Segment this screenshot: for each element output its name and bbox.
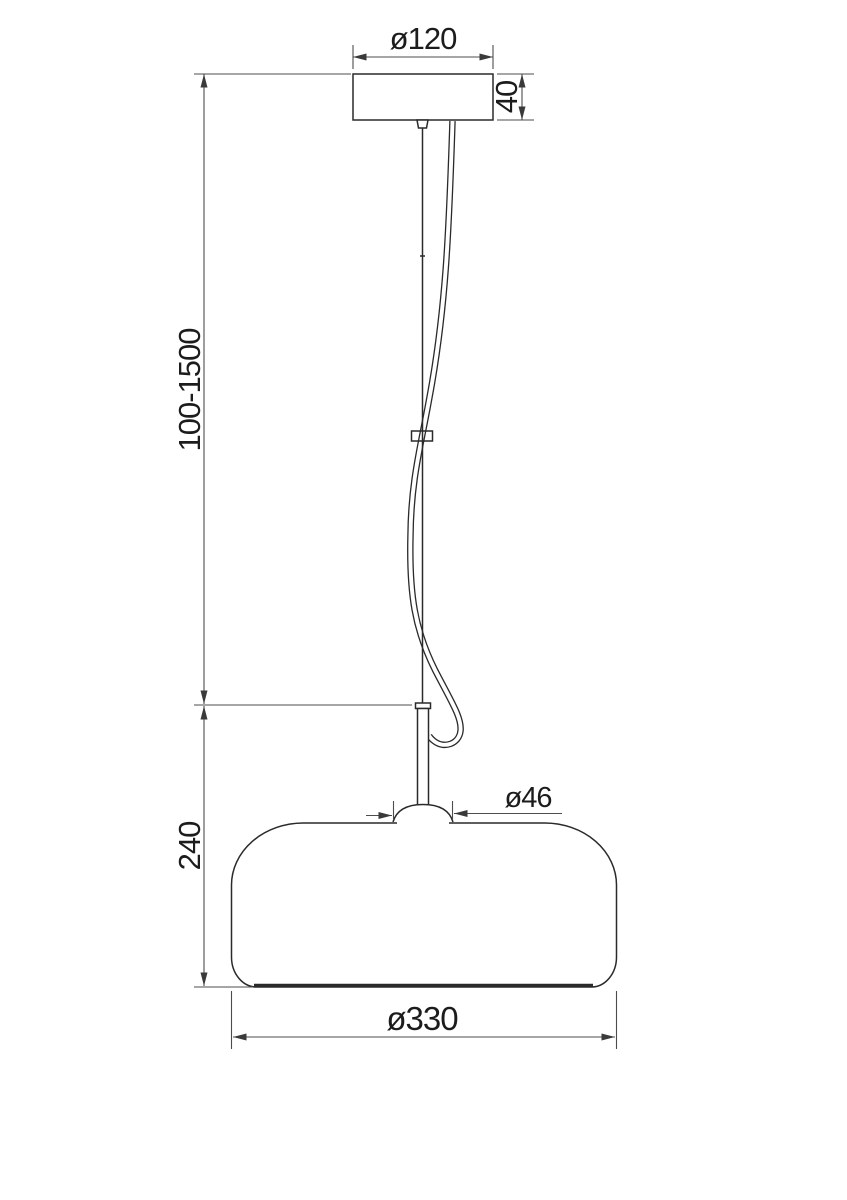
canopy-height-label: 40 xyxy=(489,80,524,113)
dimension-fixture-height: 240 xyxy=(172,705,412,987)
shade-stem xyxy=(416,703,431,809)
canopy-diameter-label: ø120 xyxy=(390,21,457,56)
ceiling-canopy xyxy=(353,74,493,120)
dimension-shade-diameter: ø330 xyxy=(232,991,617,1049)
dimension-canopy-diameter: ø120 xyxy=(353,21,493,69)
dimension-neck-diameter: ø46 xyxy=(366,782,562,820)
power-cable xyxy=(410,121,460,745)
neck-diameter-label: ø46 xyxy=(505,782,552,814)
technical-drawing-page: ø120 40 100-1500 240 ø46 ø330 xyxy=(0,0,847,1200)
lamp-object xyxy=(232,74,617,987)
pendant-lamp-drawing: ø120 40 100-1500 240 ø46 ø330 xyxy=(0,0,847,1200)
dimension-canopy-height: 40 xyxy=(489,74,534,120)
lampshade-outline xyxy=(232,823,617,987)
dimension-suspension-range: 100-1500 xyxy=(172,74,351,704)
fixture-height-label: 240 xyxy=(172,821,207,870)
rod-fitting xyxy=(417,120,428,128)
shade-diameter-label: ø330 xyxy=(386,1000,458,1037)
shade-neck-dome xyxy=(393,805,453,823)
suspension-range-label: 100-1500 xyxy=(172,328,207,452)
